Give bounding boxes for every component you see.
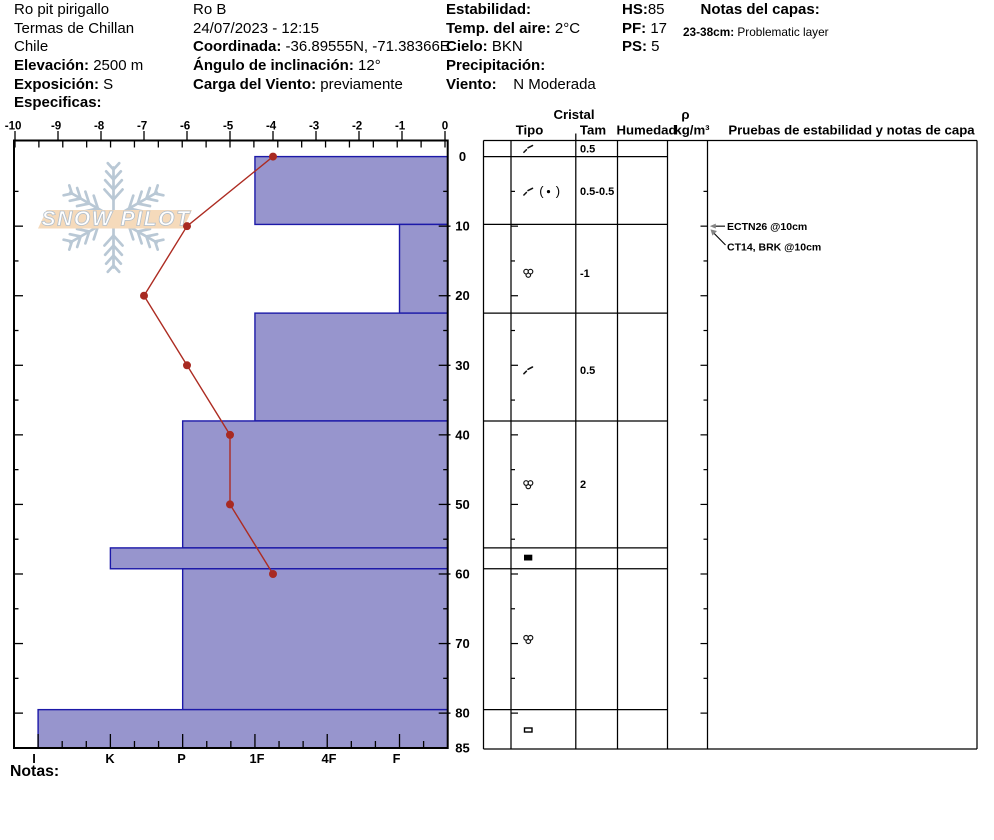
svg-text:-10: -10 — [5, 119, 22, 132]
svg-text:(: ( — [539, 184, 544, 199]
svg-text:0: 0 — [459, 149, 466, 164]
svg-text:1F: 1F — [250, 751, 265, 766]
svg-text:0.5: 0.5 — [580, 365, 595, 377]
svg-text:30: 30 — [455, 358, 469, 373]
svg-text:P: P — [177, 751, 186, 766]
svg-text:ρ: ρ — [681, 107, 689, 122]
svg-text:4F: 4F — [322, 751, 337, 766]
svg-text:-6: -6 — [180, 119, 191, 132]
svg-text:60: 60 — [455, 566, 469, 581]
svg-text:80: 80 — [455, 706, 469, 721]
svg-text:-1: -1 — [395, 119, 406, 132]
svg-text:-9: -9 — [51, 119, 62, 132]
svg-text:10: 10 — [455, 219, 469, 234]
svg-text:Tipo: Tipo — [516, 123, 544, 138]
svg-text:0: 0 — [442, 119, 448, 132]
svg-text:): ) — [556, 184, 560, 199]
svg-text:2: 2 — [580, 479, 586, 491]
svg-text:20: 20 — [455, 288, 469, 303]
svg-text:Cristal: Cristal — [553, 107, 594, 122]
svg-text:50: 50 — [455, 497, 469, 512]
svg-text:ECTN26 @10cm: ECTN26 @10cm — [727, 221, 807, 233]
svg-text:kg/m³: kg/m³ — [674, 123, 710, 138]
svg-text:-8: -8 — [94, 119, 105, 132]
svg-text:0.5: 0.5 — [580, 143, 595, 155]
svg-text:-5: -5 — [223, 119, 234, 132]
svg-text:Humedad: Humedad — [616, 123, 676, 138]
svg-text:70: 70 — [455, 636, 469, 651]
svg-text:CT14, BRK @10cm: CT14, BRK @10cm — [727, 241, 821, 253]
svg-text:-1: -1 — [580, 268, 590, 280]
svg-text:-2: -2 — [352, 119, 362, 132]
svg-text:-4: -4 — [266, 119, 277, 132]
svg-text:0.5-0.5: 0.5-0.5 — [580, 186, 614, 198]
svg-text:40: 40 — [455, 427, 469, 442]
svg-text:Pruebas de estabilidad y notas: Pruebas de estabilidad y notas de capa — [728, 123, 975, 138]
svg-text:-3: -3 — [309, 119, 320, 132]
svg-text:F: F — [393, 751, 401, 766]
svg-text:-7: -7 — [137, 119, 147, 132]
svg-text:SNOW PILOT: SNOW PILOT — [42, 208, 192, 231]
svg-text:K: K — [105, 751, 115, 766]
svg-text:Tam: Tam — [580, 123, 606, 138]
svg-text:85: 85 — [455, 740, 469, 755]
